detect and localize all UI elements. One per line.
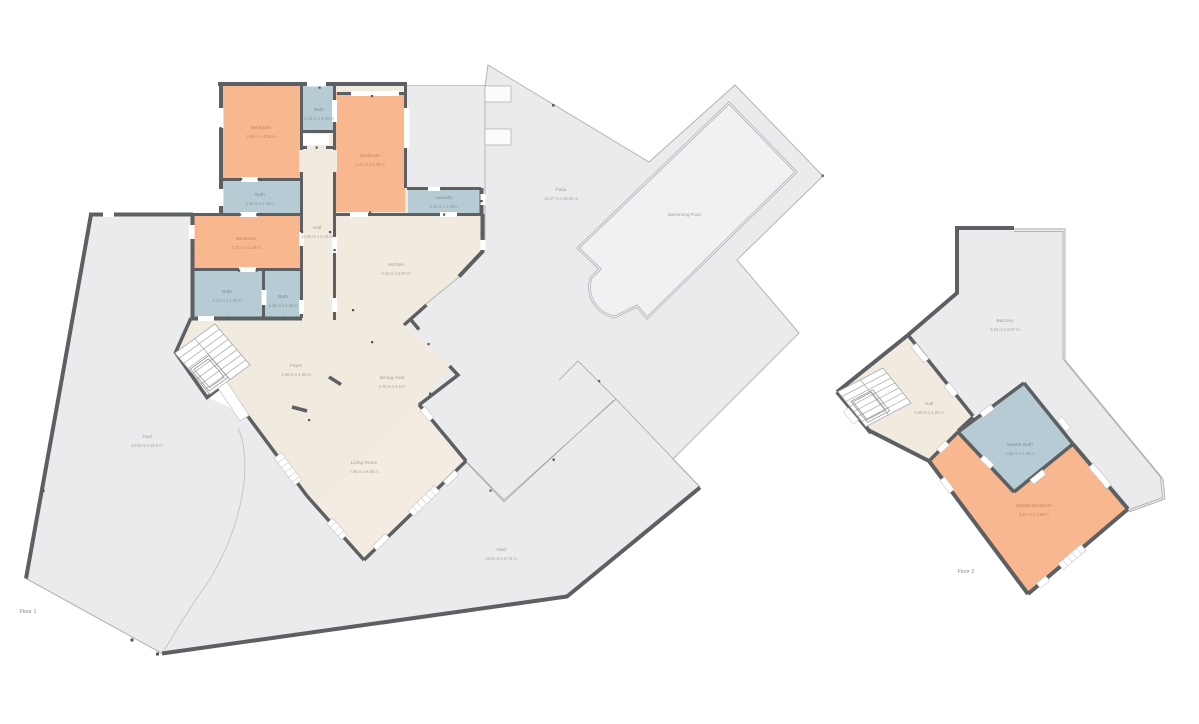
svg-text:Bedroom: Bedroom — [251, 125, 270, 131]
svg-text:Bedroom: Bedroom — [236, 236, 255, 242]
svg-text:Bath: Bath — [222, 289, 232, 295]
svg-text:Floor 2: Floor 2 — [957, 569, 974, 575]
svg-text:Laundry: Laundry — [435, 195, 453, 201]
svg-text:23.03 m x 20.6 m: 23.03 m x 20.6 m — [131, 443, 163, 448]
svg-text:Master Bedroom: Master Bedroom — [1016, 503, 1051, 509]
svg-text:3.48 m x 4.61 m: 3.48 m x 4.61 m — [246, 134, 276, 139]
svg-text:4.73 m x 2.18 m: 4.73 m x 2.18 m — [231, 245, 261, 250]
svg-text:Dining Area: Dining Area — [380, 375, 405, 381]
svg-text:5.05 m x 4.25 m: 5.05 m x 4.25 m — [914, 410, 944, 415]
svg-text:Living Room: Living Room — [351, 460, 378, 466]
svg-text:18.17 m x 15.32 m: 18.17 m x 15.32 m — [544, 196, 578, 201]
svg-text:Kitchen: Kitchen — [388, 262, 404, 268]
svg-text:Bath: Bath — [278, 294, 288, 300]
svg-text:Balcony: Balcony — [996, 318, 1014, 324]
svg-text:Yard: Yard — [142, 434, 152, 440]
svg-text:1.48 m x 2.99 m: 1.48 m x 2.99 m — [268, 303, 298, 308]
svg-text:10.60 m x 5.43 m: 10.60 m x 5.43 m — [301, 234, 333, 239]
svg-text:Foyer: Foyer — [290, 363, 303, 369]
svg-text:3.46 m x 1.34 m: 3.46 m x 1.34 m — [245, 201, 275, 206]
svg-text:Bedroom: Bedroom — [360, 153, 379, 159]
svg-text:16.01 m x 6.73 m: 16.01 m x 6.73 m — [485, 556, 517, 561]
svg-text:7.96 m x 6.86 m: 7.96 m x 6.86 m — [349, 469, 379, 474]
svg-text:Bath: Bath — [314, 107, 324, 113]
svg-text:Swimming Pool: Swimming Pool — [667, 212, 700, 218]
svg-text:3.33 m x 1.08 m: 3.33 m x 1.08 m — [429, 204, 459, 209]
svg-text:Yard: Yard — [496, 547, 506, 553]
svg-text:Floor 1: Floor 1 — [19, 609, 36, 615]
svg-text:6.19 m x 8.57 m: 6.19 m x 8.57 m — [990, 327, 1020, 332]
svg-text:Hall: Hall — [925, 401, 933, 407]
svg-text:3.41 m x 5.48 m: 3.41 m x 5.48 m — [355, 162, 385, 167]
svg-text:4.70 m x 3.9 m: 4.70 m x 3.9 m — [378, 384, 406, 389]
svg-text:Master Bath: Master Bath — [1007, 442, 1033, 448]
svg-text:6.23 m x 6.07 m: 6.23 m x 6.07 m — [381, 271, 411, 276]
svg-text:4.85 m x 2.46 m: 4.85 m x 2.46 m — [1005, 451, 1035, 456]
svg-text:5.57 m x 7.88 m: 5.57 m x 7.88 m — [1019, 512, 1049, 517]
svg-text:3.14 m x 1.00 m: 3.14 m x 1.00 m — [212, 298, 242, 303]
svg-text:Bath: Bath — [255, 192, 265, 198]
svg-text:1.40 m x 2.00 m: 1.40 m x 2.00 m — [304, 116, 334, 121]
svg-text:Patio: Patio — [556, 187, 567, 193]
svg-text:3.98 m x 4.80 m: 3.98 m x 4.80 m — [281, 372, 311, 377]
svg-text:Hall: Hall — [313, 225, 321, 231]
